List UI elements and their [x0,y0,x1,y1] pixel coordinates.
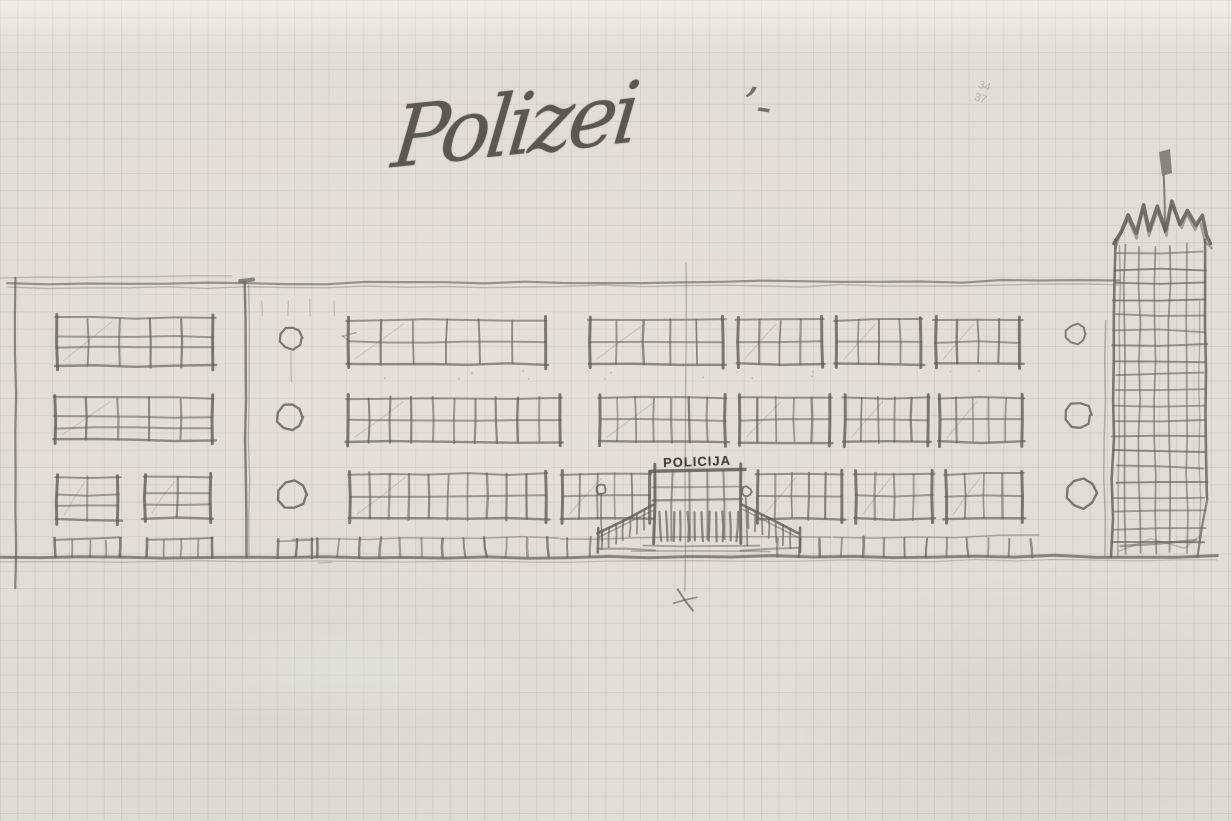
wing-divider-line [240,280,253,558]
tower [1104,201,1212,557]
left-wall-edge [15,278,16,589]
ground-line [0,555,1217,562]
left-wing-windows [53,314,216,557]
entrance-railings [597,505,800,553]
center-axis-mark [674,263,697,611]
graph-paper-sheet: Polizei ’- POLICIJA 34 37 [0,0,1231,821]
roof-line [0,276,1119,289]
